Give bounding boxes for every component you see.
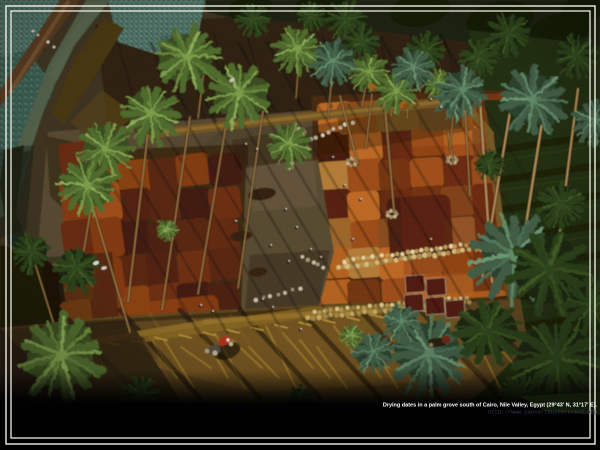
svg-text:http://www.yannarthusbertrand.: http://www.yannarthusbertrand.org xyxy=(488,409,597,416)
